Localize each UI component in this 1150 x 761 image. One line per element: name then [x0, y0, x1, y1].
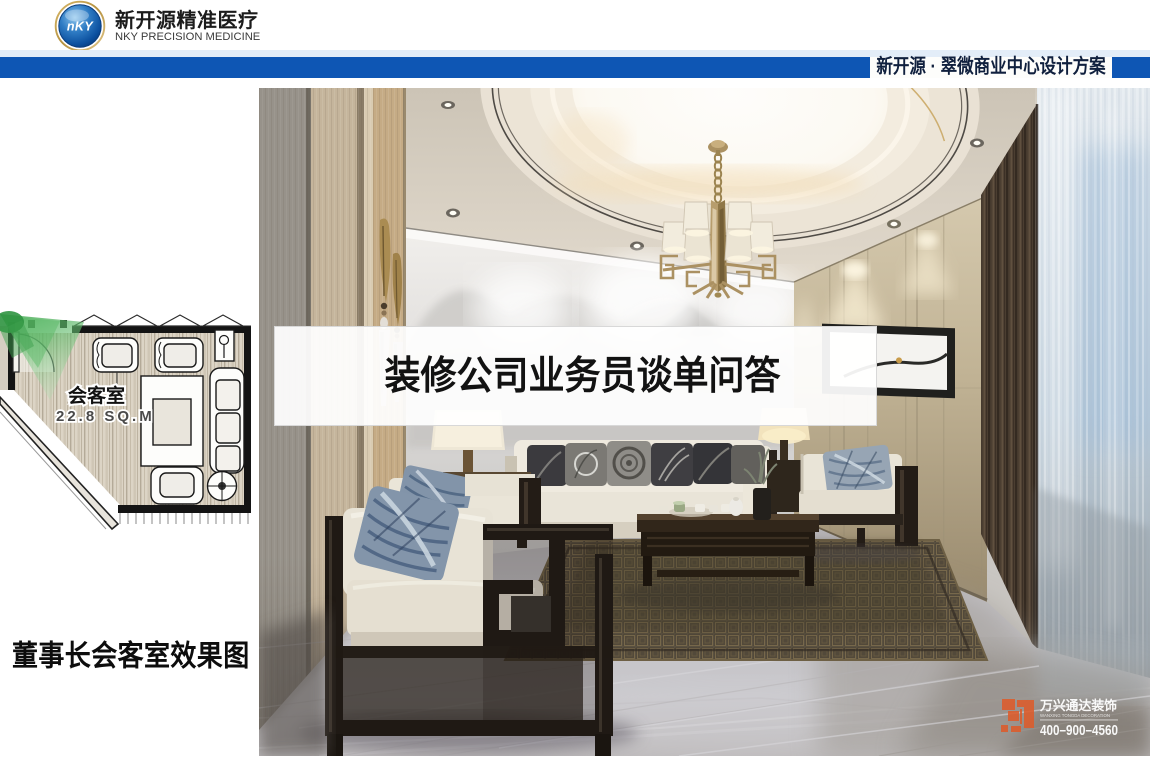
svg-text:万兴通达装饰: 万兴通达装饰 — [1039, 698, 1117, 713]
svg-text:会客室: 会客室 — [68, 384, 125, 407]
svg-text:400–900–4560: 400–900–4560 — [1040, 723, 1118, 739]
svg-text:WANXING TONGDA DECORATION: WANXING TONGDA DECORATION — [1040, 713, 1110, 718]
svg-text:22.8 SQ.M: 22.8 SQ.M — [56, 408, 155, 425]
svg-text:nKY: nKY — [67, 20, 94, 34]
